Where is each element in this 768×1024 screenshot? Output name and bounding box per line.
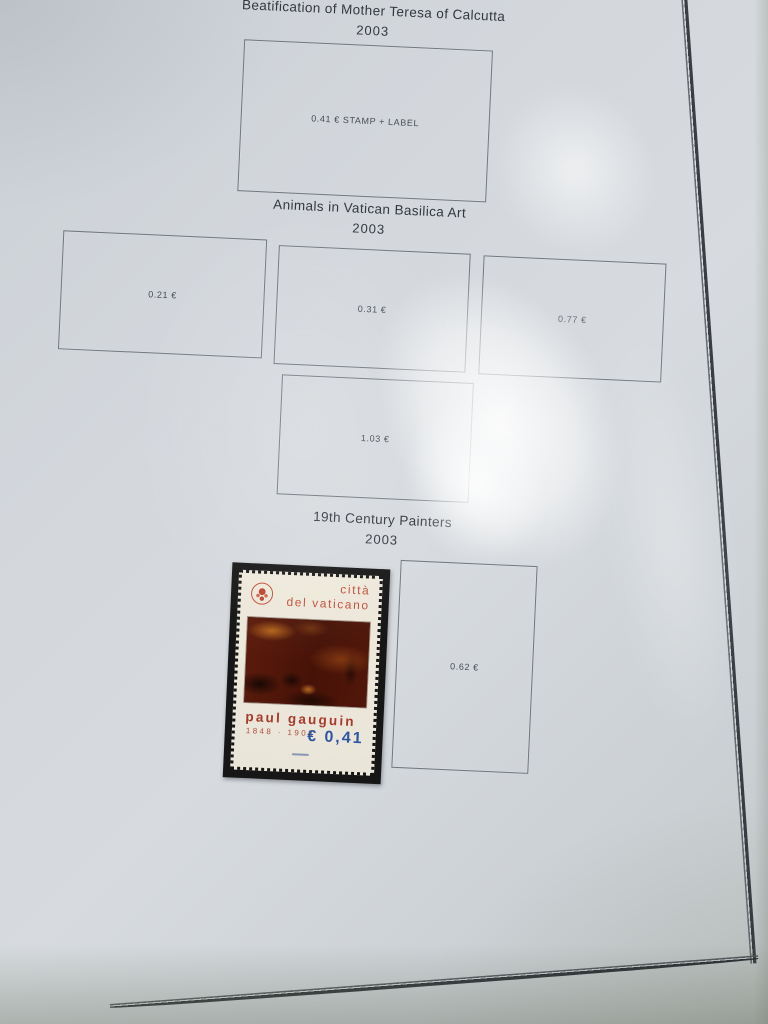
stamp-denomination: € 0,41 [307, 728, 364, 749]
stamp-mount: città del vaticano paul gauguin 1848 · 1… [223, 562, 391, 784]
stamp-placeholder-box: 0.31 € [274, 245, 471, 373]
placeholder-label: 1.03 € [361, 433, 390, 444]
stamp-placeholder-box: 0.41 € STAMP + LABEL [237, 39, 493, 202]
placeholder-label: 0.62 € [450, 661, 479, 672]
album-page-photo: Beatification of Mother Teresa of Calcut… [0, 0, 768, 1024]
page-right-edge-shadow [754, 0, 768, 1024]
placeholder-label: 0.31 € [358, 303, 387, 314]
stamp-artist-years: 1848 · 1903 [246, 726, 315, 738]
gauguin-painting-image [244, 617, 370, 707]
album-page-content: Beatification of Mother Teresa of Calcut… [0, 0, 768, 1024]
stamp-placeholder-box: 0.77 € [478, 255, 666, 382]
stamp-country-text: città del vaticano [286, 580, 371, 614]
vatican-keys-emblem-icon [251, 582, 274, 605]
stamp-printer-imprint-mark [292, 753, 309, 756]
stamp-country-line2: del vaticano [286, 595, 370, 614]
stamp-placeholder-box: 0.21 € [58, 230, 267, 358]
page-bottom-shadow [0, 944, 768, 1024]
section-title-painters: 19th Century Painters 2003 [181, 501, 582, 559]
placeholder-label: 0.21 € [148, 289, 177, 300]
section-title-mother-teresa: Beatification of Mother Teresa of Calcut… [172, 0, 573, 50]
stamp-placeholder-box: 1.03 € [277, 374, 474, 503]
placeholder-label: 0.77 € [558, 313, 587, 324]
placeholder-label: 0.41 € STAMP + LABEL [311, 113, 419, 128]
stamp-placeholder-box: 0.62 € [391, 560, 537, 774]
gauguin-stamp: città del vaticano paul gauguin 1848 · 1… [230, 570, 383, 776]
